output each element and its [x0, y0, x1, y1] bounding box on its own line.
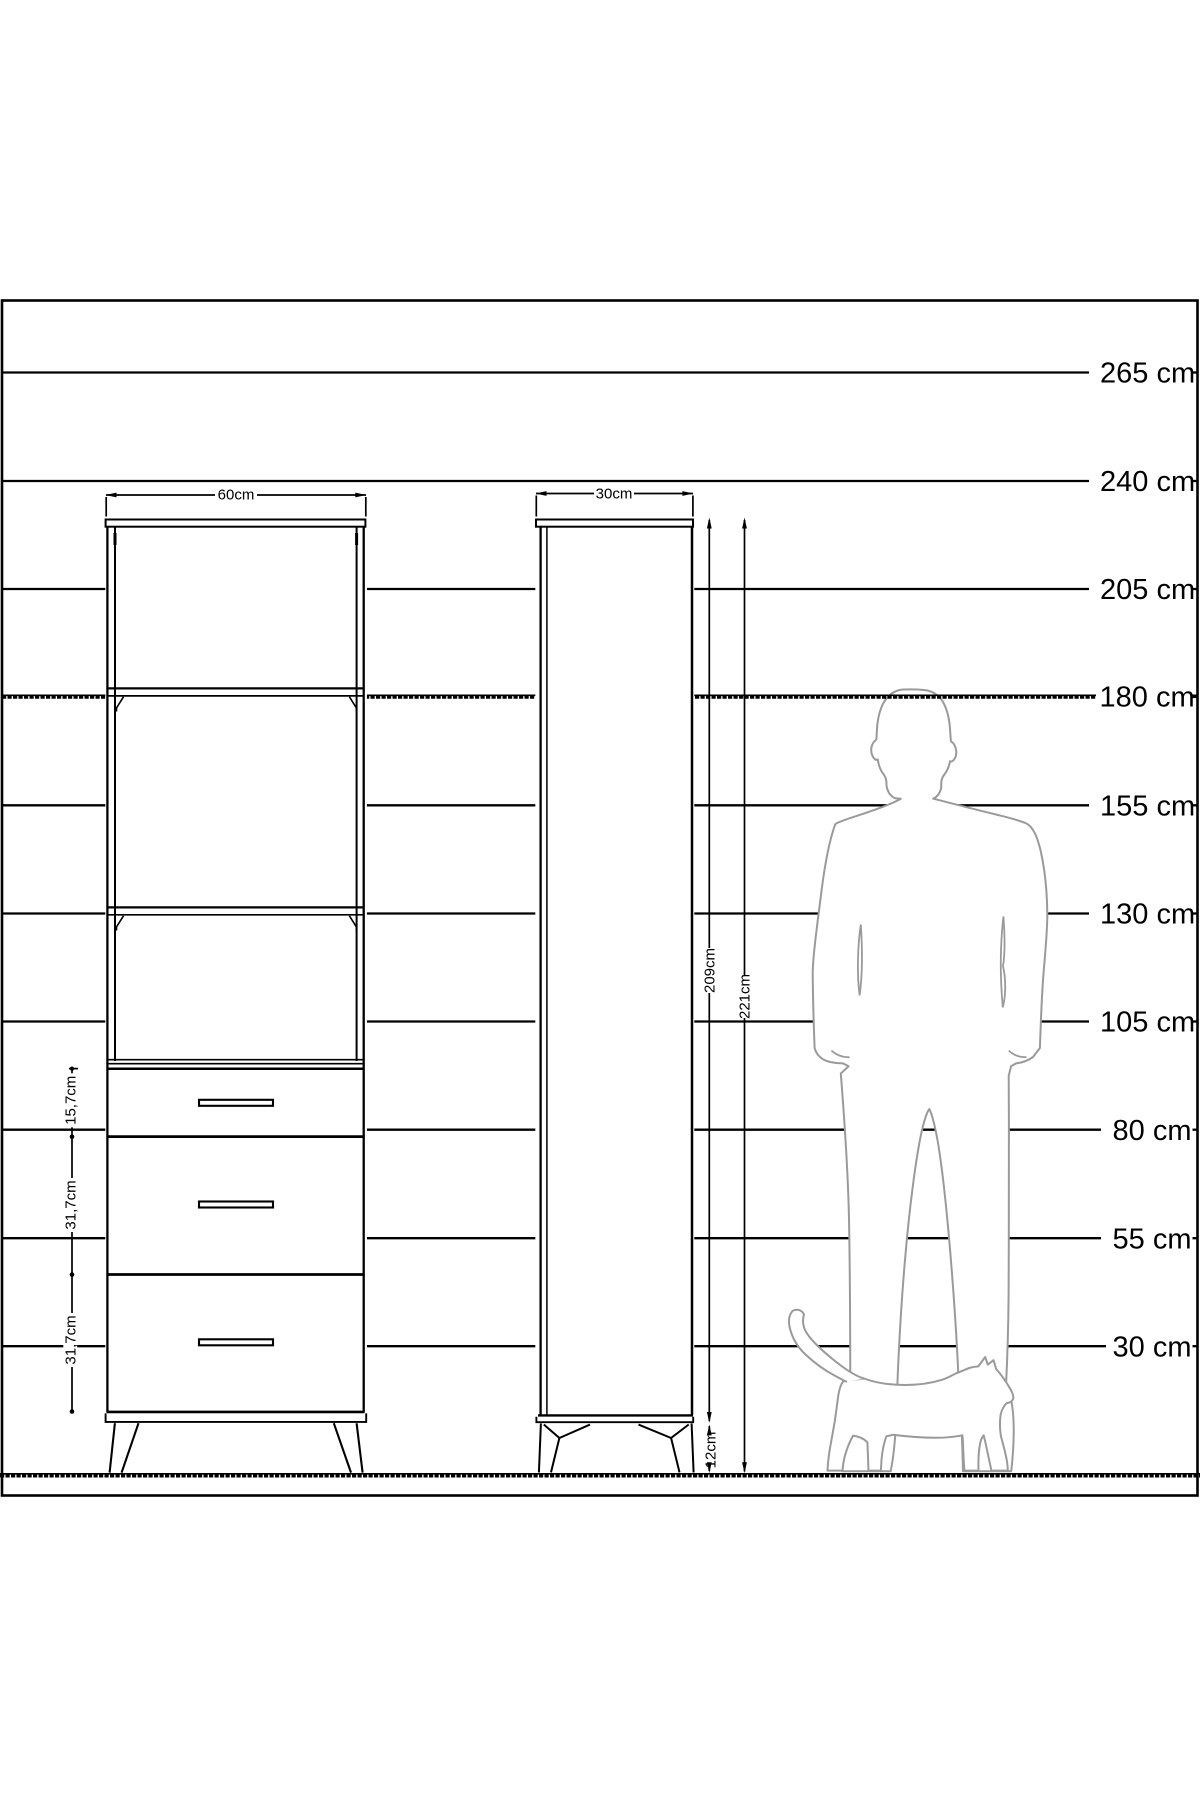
- svg-text:31,7cm: 31,7cm: [62, 1180, 79, 1229]
- svg-text:265 cm: 265 cm: [1100, 358, 1195, 390]
- svg-text:55 cm: 55 cm: [1113, 1223, 1192, 1255]
- svg-text:60cm: 60cm: [218, 487, 255, 504]
- svg-text:15,7cm: 15,7cm: [62, 1076, 79, 1125]
- svg-text:105 cm: 105 cm: [1100, 1007, 1195, 1039]
- svg-text:80 cm: 80 cm: [1113, 1115, 1192, 1147]
- svg-text:221cm: 221cm: [737, 974, 754, 1019]
- svg-text:180 cm: 180 cm: [1100, 682, 1195, 714]
- svg-text:209cm: 209cm: [701, 948, 718, 993]
- svg-text:155 cm: 155 cm: [1100, 791, 1195, 823]
- svg-text:130 cm: 130 cm: [1100, 899, 1195, 931]
- svg-text:240 cm: 240 cm: [1100, 466, 1195, 498]
- svg-text:30cm: 30cm: [596, 485, 633, 502]
- svg-text:30 cm: 30 cm: [1113, 1331, 1192, 1363]
- svg-text:12cm: 12cm: [703, 1432, 720, 1469]
- svg-text:205 cm: 205 cm: [1100, 574, 1195, 606]
- svg-text:31,7cm: 31,7cm: [62, 1315, 79, 1364]
